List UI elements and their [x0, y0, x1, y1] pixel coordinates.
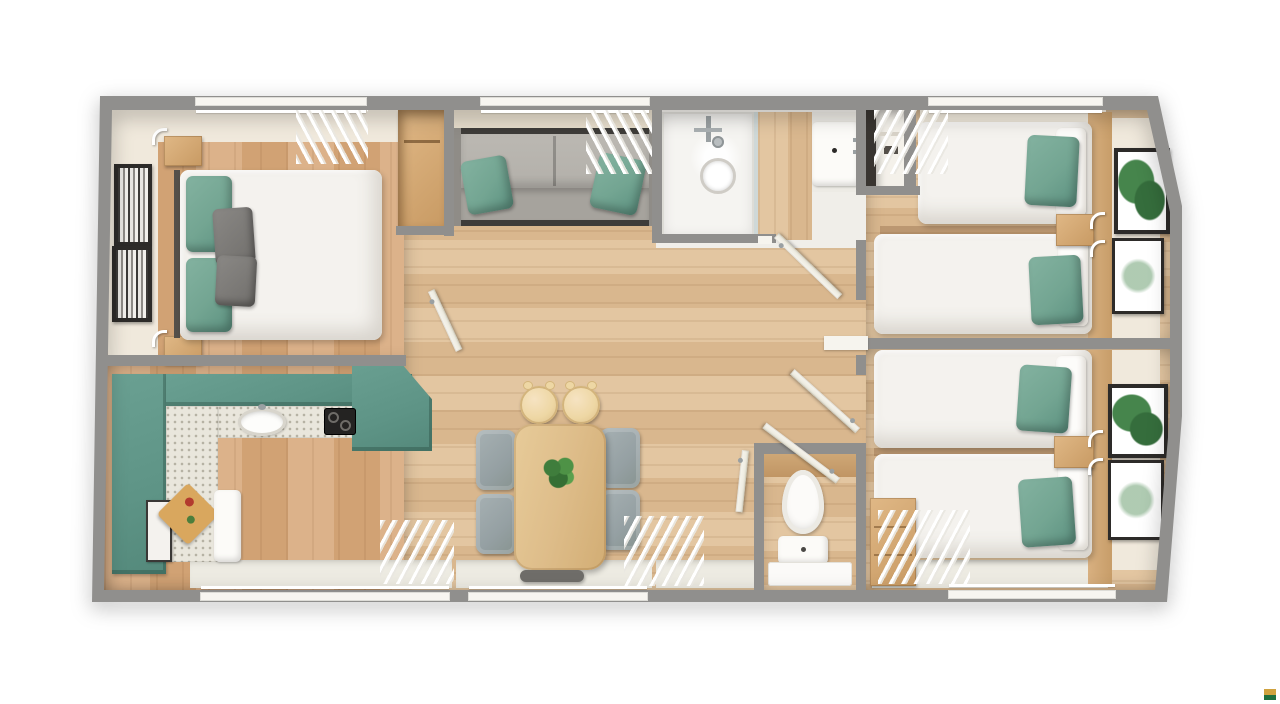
wardrobe-shelf	[404, 140, 440, 143]
basin-tap-1	[853, 138, 862, 142]
twin1-wall-art-sketch	[1112, 238, 1164, 314]
dining-chair-left-1	[476, 430, 516, 490]
dining-table-plant	[542, 456, 576, 490]
dining-window	[468, 592, 648, 601]
kitchen-curtain-rod	[201, 586, 449, 589]
kitchen-window	[200, 592, 450, 601]
dining-chair-left-2	[476, 494, 516, 554]
corner-logo	[1264, 689, 1276, 700]
basin-tap-2	[853, 150, 862, 154]
twin2-window	[948, 590, 1116, 599]
lounge-curtains	[586, 110, 652, 174]
twin2-curtain-rod	[949, 584, 1115, 587]
twin2-bed-a-green-pillow	[1016, 364, 1072, 433]
kitchen-curtains	[380, 520, 454, 584]
dining-stool-2	[562, 386, 600, 424]
lounge-window	[480, 97, 650, 106]
twin1-bed-b-green-pillow	[1028, 255, 1083, 326]
washbasin-unit	[812, 122, 860, 186]
kitchen-tap	[258, 404, 266, 410]
shower-head	[712, 136, 724, 148]
sofa-cushion-split	[553, 136, 556, 186]
master-wall-art-2	[112, 246, 152, 322]
twin2-wall-art-monstera	[1108, 384, 1168, 458]
basin-plug	[832, 148, 837, 153]
twin2-curtains	[878, 510, 970, 584]
dining-bench	[520, 570, 584, 582]
master-nightstand-top	[164, 136, 202, 166]
dining-curtain-rod	[469, 586, 647, 589]
master-open-wardrobe	[398, 110, 446, 228]
logo-bottom-half	[1264, 695, 1276, 701]
twin1-bedside-shelf	[1056, 214, 1094, 246]
shower-room-wood-strip	[758, 112, 812, 240]
twin1-door-threshold	[824, 336, 868, 350]
dining-curtains	[624, 516, 704, 586]
twin2-wall-art-sketch	[1108, 460, 1164, 540]
kitchen-fridge	[214, 490, 241, 562]
twin1-bed-a-green-pillow	[1024, 135, 1080, 208]
food-item-red	[183, 496, 196, 509]
master-curtains	[296, 110, 368, 164]
dining-chair-right-1	[600, 428, 640, 488]
shower-arm	[694, 128, 722, 132]
floor-plan-render	[0, 0, 1280, 704]
twin1-window	[928, 97, 1103, 106]
toilet-flush-button	[801, 547, 806, 552]
sofa-green-cushion-left	[460, 154, 515, 215]
sofa-front-rail	[460, 220, 650, 226]
shower-drain	[700, 158, 736, 194]
twin1-wall-art-leaf	[1114, 148, 1170, 234]
toilet-cistern	[778, 536, 828, 564]
twin2-bed-b-green-pillow	[1018, 476, 1077, 548]
twin1-curtain-rod	[929, 110, 1102, 113]
shower-door-jamb	[758, 236, 772, 244]
master-gray-pillow-2	[215, 255, 258, 307]
master-window	[195, 97, 367, 106]
kitchen-hob	[324, 408, 356, 435]
dining-table	[514, 424, 606, 570]
master-wall-art-1	[114, 164, 152, 246]
dining-stool-1	[520, 386, 558, 424]
twin1-curtains	[874, 110, 948, 174]
sofa-arm-left	[453, 128, 461, 226]
toilet-bowl	[782, 470, 824, 534]
master-nightstand-bottom	[164, 336, 202, 364]
food-item-green	[185, 514, 196, 525]
wc-mat	[768, 562, 852, 586]
kitchen-sink	[238, 408, 286, 436]
